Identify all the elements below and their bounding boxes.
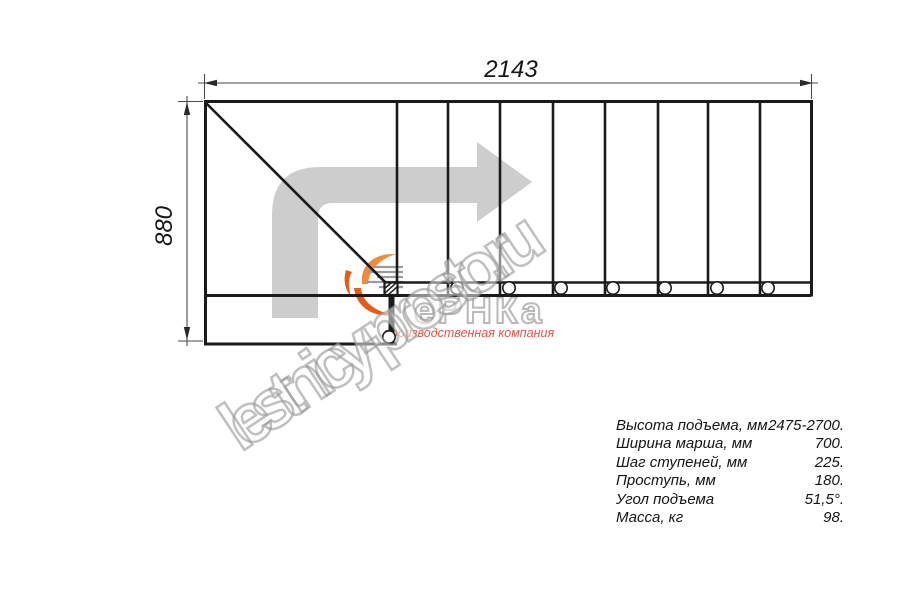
spec-row: Угол подъема 51,5°. — [616, 491, 844, 509]
baluster-circle — [451, 282, 463, 294]
spec-value: 2475-2700. — [768, 417, 844, 435]
spec-label: Шаг ступеней, мм — [616, 454, 747, 472]
spec-label: Масса, кг — [616, 509, 683, 527]
spec-label: Высота подъема, мм — [616, 417, 768, 435]
height-dimension-label: 880 — [151, 205, 178, 246]
baluster-circle — [762, 282, 774, 294]
spec-row: Ширина марша, мм 700. — [616, 435, 844, 453]
spec-value: 225. — [815, 454, 844, 472]
width-dimension-label: 2143 — [483, 56, 538, 83]
spec-value: 98. — [823, 509, 844, 527]
spec-value: 51,5°. — [805, 491, 844, 509]
baluster-circle — [607, 282, 619, 294]
spec-row: Высота подъема, мм 2475-2700. — [616, 417, 844, 435]
spec-row: Масса, кг 98. — [616, 509, 844, 527]
spec-label: Проступь, мм — [616, 472, 716, 490]
baluster-circle — [503, 282, 515, 294]
spec-value: 700. — [815, 435, 844, 453]
logo-subtitle: производственная компания — [384, 326, 554, 340]
spec-value: 180. — [815, 472, 844, 490]
spec-label: Ширина марша, мм — [616, 435, 752, 453]
baluster-circle — [711, 282, 723, 294]
baluster-circle — [659, 282, 671, 294]
spec-row: Шаг ступеней, мм 225. — [616, 454, 844, 472]
baluster-circle — [555, 282, 567, 294]
spec-row: Проступь, мм 180. — [616, 472, 844, 490]
spec-label: Угол подъема — [616, 491, 714, 509]
baluster-circle — [383, 331, 395, 343]
spec-table: Высота подъема, мм 2475-2700. Ширина мар… — [616, 417, 844, 527]
